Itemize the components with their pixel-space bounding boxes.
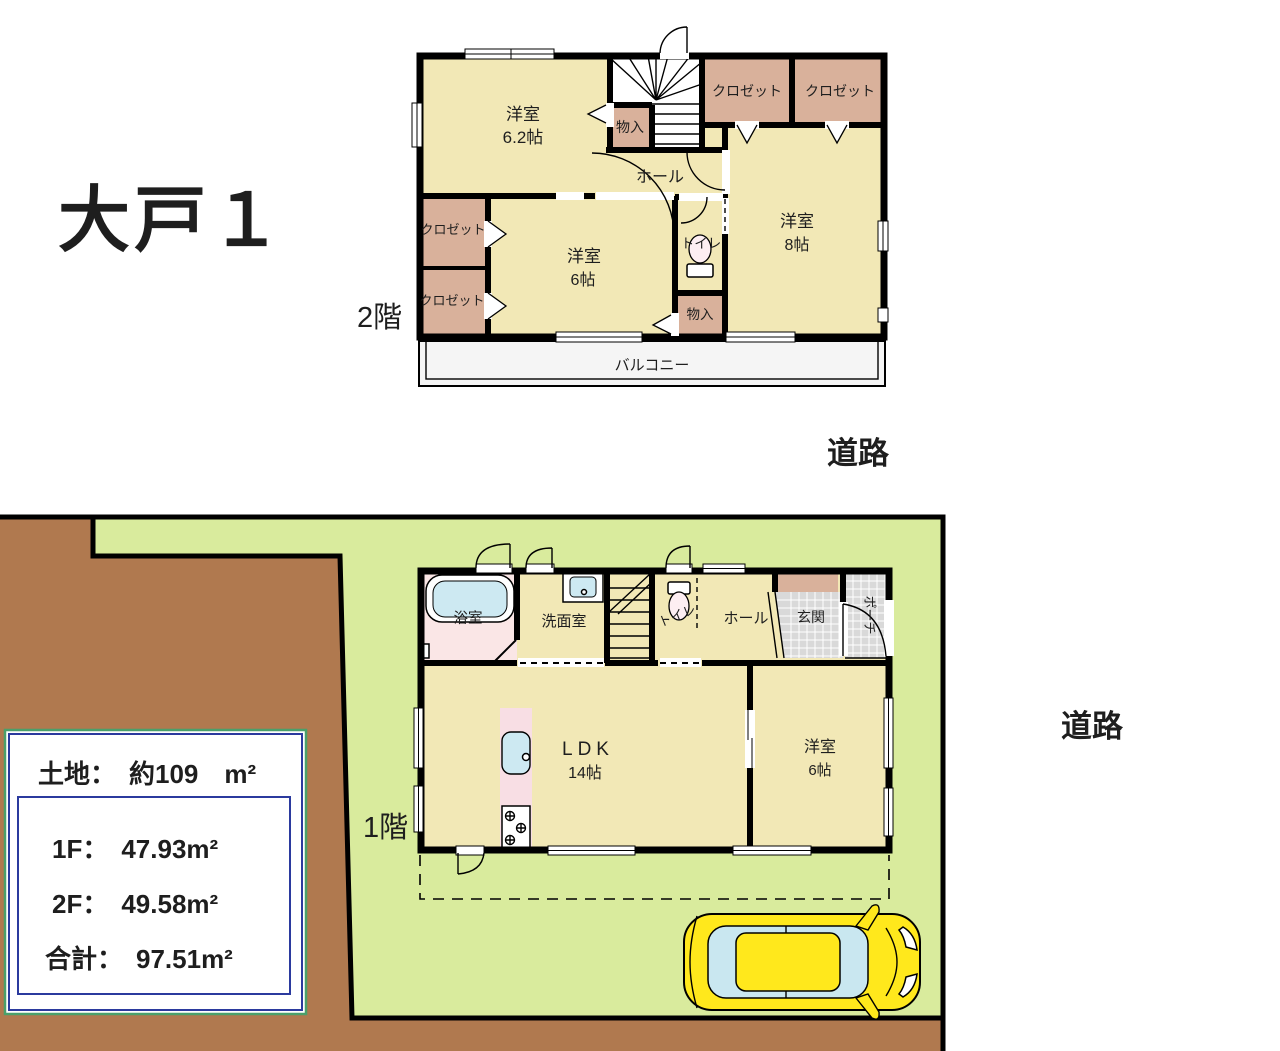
- f2-room62-size: 6.2帖: [503, 128, 544, 147]
- f2-storage-bottom: 物入: [687, 307, 715, 322]
- f2-room8-name: 洋室: [780, 212, 814, 231]
- f2-closet-l1: クロゼット: [420, 222, 485, 237]
- f2-storage-top: 物入: [616, 119, 644, 135]
- f1-porch-label: ポーチ: [862, 595, 877, 634]
- car-roof: [736, 933, 840, 991]
- f2-room62-name: 洋室: [506, 105, 540, 124]
- f2-closet-tr1: クロゼット: [712, 83, 782, 99]
- floorplan-canvas: 土地： 約109 m² 1F： 47.93m² 2F： 49.58m² 合計： …: [0, 0, 1280, 1051]
- kitchen-faucet: [523, 754, 530, 761]
- total-area-text: 合計： 97.51m²: [45, 944, 233, 974]
- land-area-text: 土地： 約109 m²: [38, 759, 256, 789]
- f1-room6-size: 6帖: [808, 762, 831, 779]
- f1-ldk-name: LDK: [562, 739, 614, 760]
- floor1-label: 1階: [363, 812, 408, 844]
- f1-entrance-label: 玄関: [797, 609, 825, 625]
- f1-washroom-label: 洗面室: [541, 613, 586, 630]
- road-label-top: 道路: [827, 436, 890, 471]
- car: [684, 905, 920, 1019]
- floorplan-page: 土地： 約109 m² 1F： 47.93m² 2F： 49.58m² 合計： …: [0, 0, 1280, 1051]
- f2-toilet-tank: [687, 264, 713, 277]
- f1-room6-name: 洋室: [804, 738, 836, 756]
- floor2-area-text: 2F： 49.58m²: [52, 889, 219, 919]
- f2-room6-name: 洋室: [567, 247, 601, 266]
- f2-closet-l2: クロゼット: [419, 293, 484, 308]
- f1-ldk-size: 14帖: [568, 764, 602, 782]
- f1-hall-label: ホール: [723, 610, 768, 627]
- f2-hall-label: ホール: [636, 169, 684, 186]
- f2-room8-size: 8帖: [785, 236, 810, 254]
- f2-closet-tr2: クロゼット: [805, 83, 875, 99]
- balcony-label: バルコニー: [615, 357, 690, 374]
- washbasin-drain: [582, 590, 587, 595]
- floor2-plan: [412, 27, 888, 386]
- road-label-right: 道路: [1061, 709, 1124, 744]
- f2-room6-size: 6帖: [571, 271, 596, 289]
- floor1-area-text: 1F： 47.93m²: [52, 834, 219, 864]
- floor2-label: 2階: [357, 302, 402, 334]
- f1-bath-label: 浴室: [454, 610, 483, 627]
- shoe-cabinet: [778, 573, 838, 592]
- page-title: 大戸１: [58, 181, 286, 261]
- f2-toilet-label: トイレ: [681, 236, 722, 251]
- area-info-box: 土地： 約109 m² 1F： 47.93m² 2F： 49.58m² 合計： …: [5, 730, 306, 1014]
- floor1-plan: [414, 544, 894, 899]
